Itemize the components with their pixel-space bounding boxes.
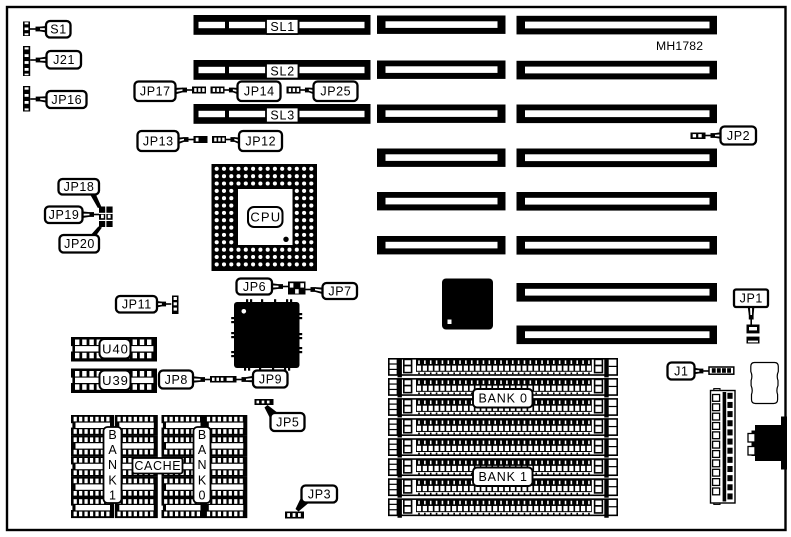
- svg-text:K: K: [108, 473, 117, 487]
- svg-text:JP25: JP25: [320, 85, 351, 99]
- svg-text:JP3: JP3: [308, 487, 331, 501]
- svg-text:SL1: SL1: [270, 20, 295, 34]
- svg-text:JP16: JP16: [51, 93, 82, 107]
- svg-text:JP9: JP9: [259, 372, 282, 386]
- svg-text:JP13: JP13: [143, 134, 174, 148]
- svg-text:CACHE: CACHE: [134, 459, 181, 473]
- svg-text:JP12: JP12: [245, 134, 276, 148]
- svg-text:J21: J21: [53, 53, 75, 67]
- svg-text:U40: U40: [102, 341, 129, 356]
- svg-text:N: N: [108, 458, 117, 472]
- svg-text:JP14: JP14: [244, 85, 275, 99]
- svg-text:1: 1: [109, 488, 116, 502]
- svg-text:CPU: CPU: [250, 210, 281, 225]
- svg-text:JP18: JP18: [64, 180, 95, 194]
- svg-text:BANK 1: BANK 1: [479, 470, 528, 484]
- svg-text:U39: U39: [102, 373, 129, 388]
- svg-text:JP5: JP5: [276, 415, 299, 429]
- svg-text:SL2: SL2: [270, 64, 295, 78]
- svg-text:A: A: [198, 443, 207, 457]
- svg-text:B: B: [198, 428, 206, 442]
- svg-text:JP20: JP20: [64, 237, 95, 251]
- svg-text:J1: J1: [674, 364, 688, 378]
- svg-text:JP2: JP2: [727, 129, 750, 143]
- svg-text:JP7: JP7: [328, 284, 351, 298]
- svg-text:JP11: JP11: [122, 298, 152, 312]
- svg-text:K: K: [198, 473, 207, 487]
- svg-text:A: A: [108, 443, 117, 457]
- svg-text:JP1: JP1: [740, 292, 763, 306]
- svg-text:JP17: JP17: [140, 85, 171, 99]
- svg-text:BANK 0: BANK 0: [479, 392, 528, 406]
- svg-text:JP19: JP19: [49, 208, 80, 222]
- svg-text:S1: S1: [50, 23, 67, 37]
- svg-text:0: 0: [199, 488, 206, 502]
- svg-text:N: N: [197, 458, 206, 472]
- svg-text:JP8: JP8: [165, 373, 188, 387]
- svg-text:MH1782: MH1782: [656, 39, 703, 53]
- svg-text:B: B: [108, 428, 116, 442]
- svg-text:JP6: JP6: [243, 280, 266, 294]
- svg-text:SL3: SL3: [270, 108, 295, 122]
